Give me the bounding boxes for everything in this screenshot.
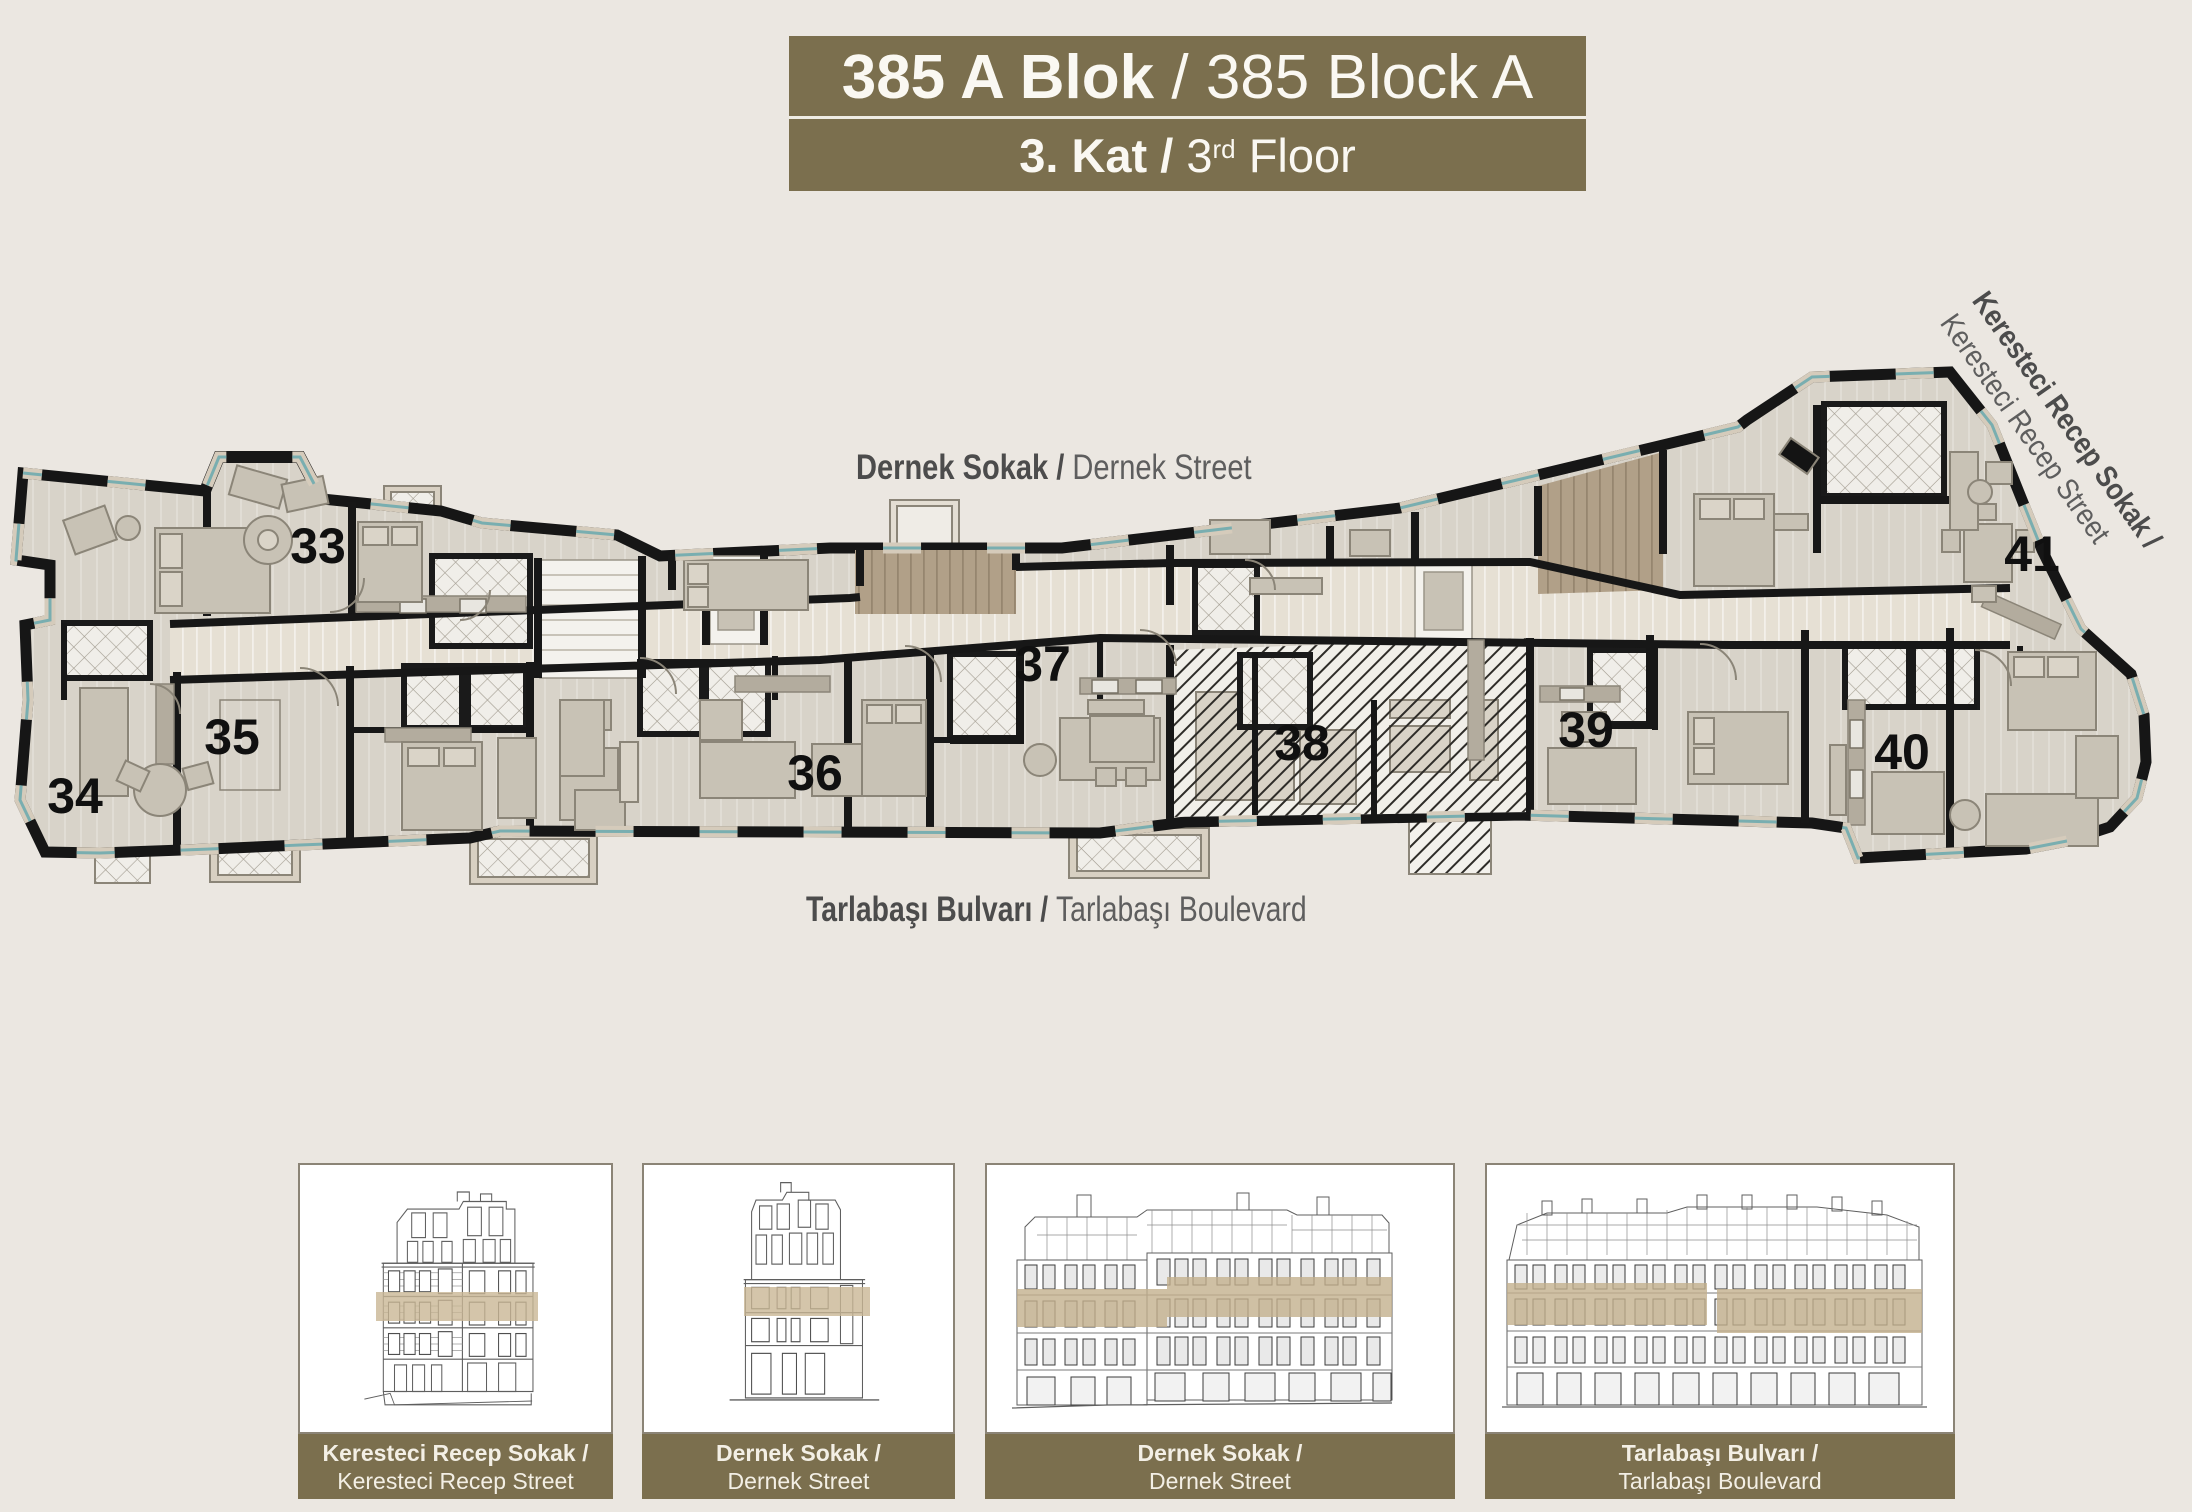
svg-text:37: 37	[1015, 636, 1071, 692]
svg-text:39: 39	[1558, 702, 1614, 758]
svg-text:40: 40	[1874, 724, 1930, 780]
svg-text:35: 35	[204, 709, 260, 765]
svg-text:33: 33	[290, 518, 346, 574]
svg-text:34: 34	[47, 768, 103, 824]
svg-text:36: 36	[787, 745, 843, 801]
svg-text:38: 38	[1274, 715, 1330, 771]
